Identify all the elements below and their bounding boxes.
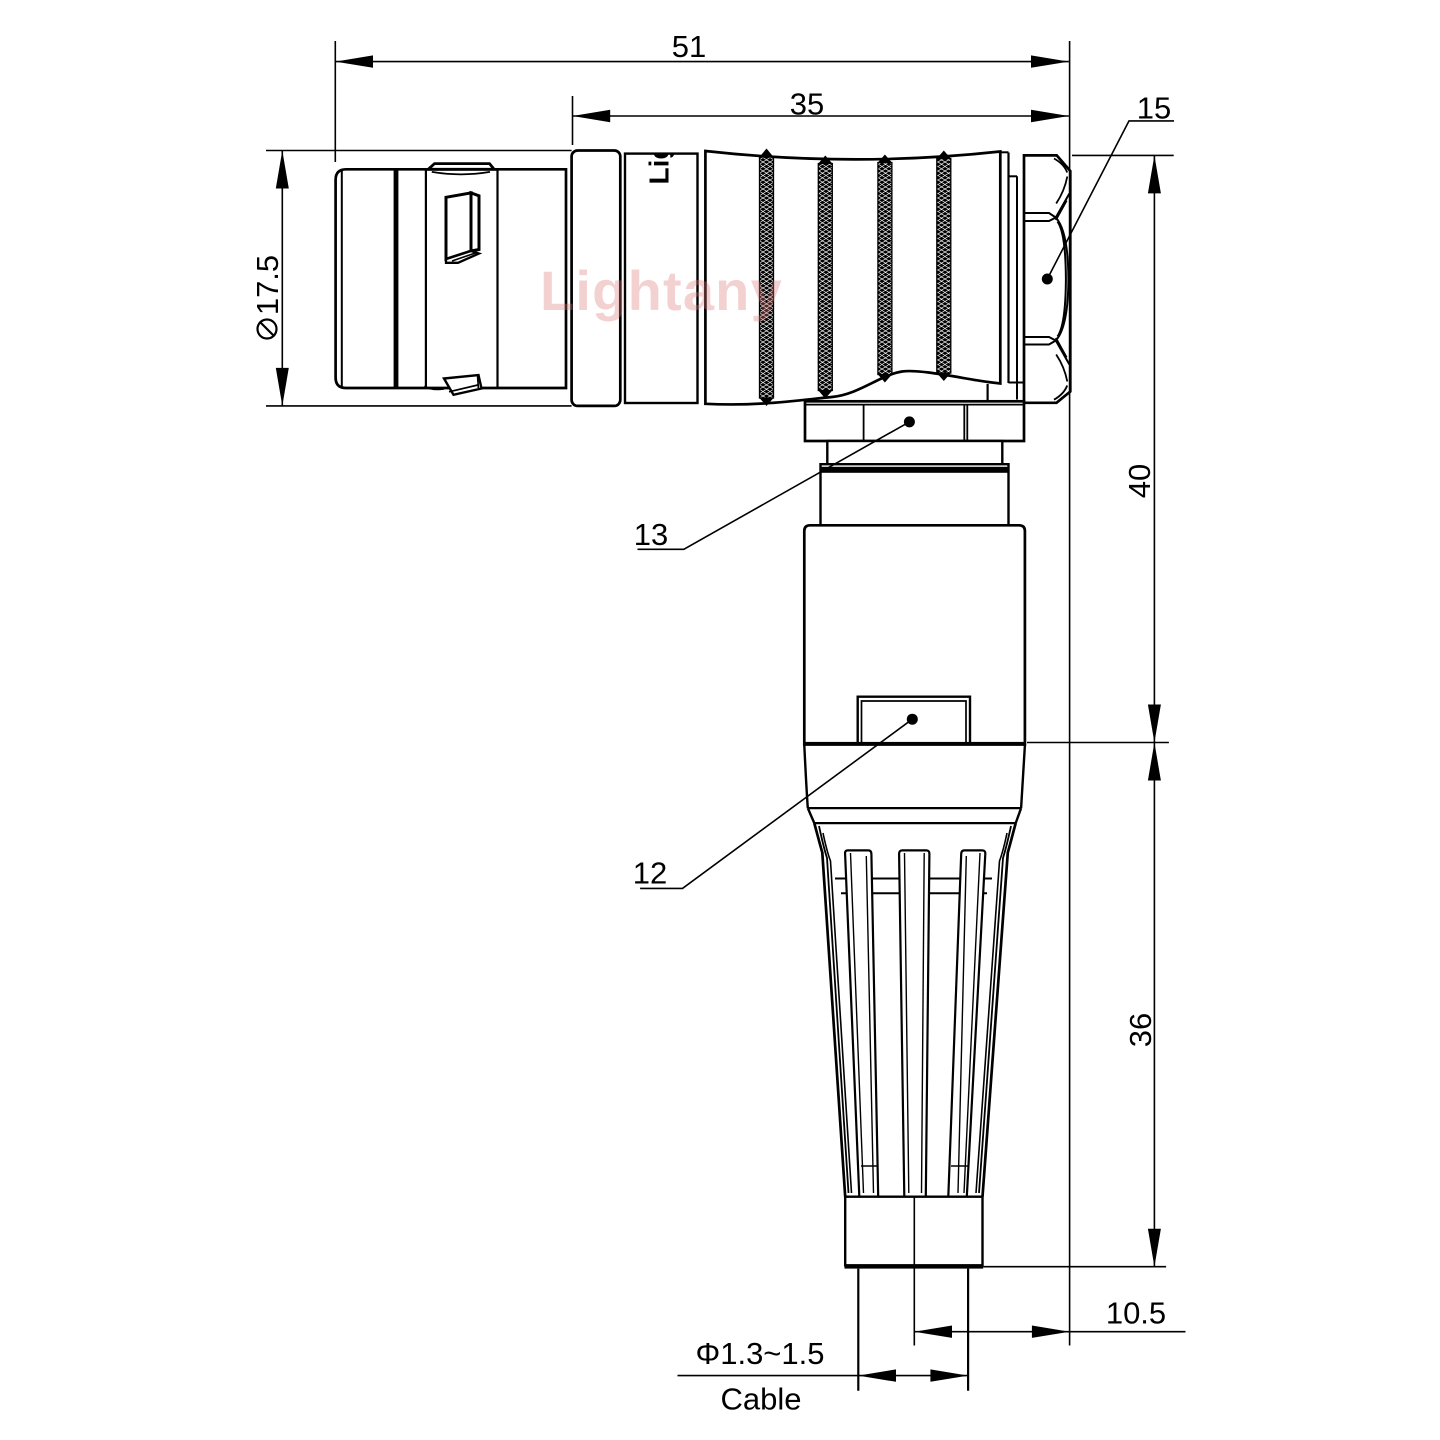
svg-text:51: 51 (672, 29, 706, 64)
svg-text:17.5: 17.5 (250, 255, 285, 315)
svg-text:10.5: 10.5 (1106, 1296, 1166, 1331)
svg-text:40: 40 (1122, 464, 1157, 498)
svg-text:13: 13 (634, 517, 668, 552)
svg-text:Lig: Lig (644, 143, 675, 185)
svg-text:Φ1.3~1.5: Φ1.3~1.5 (695, 1336, 824, 1371)
svg-text:36: 36 (1123, 1013, 1158, 1047)
svg-text:15: 15 (1137, 91, 1171, 126)
svg-text:35: 35 (790, 87, 824, 122)
svg-text:Cable: Cable (721, 1382, 802, 1417)
svg-text:Lightany: Lightany (540, 259, 783, 322)
svg-text:12: 12 (633, 856, 667, 891)
